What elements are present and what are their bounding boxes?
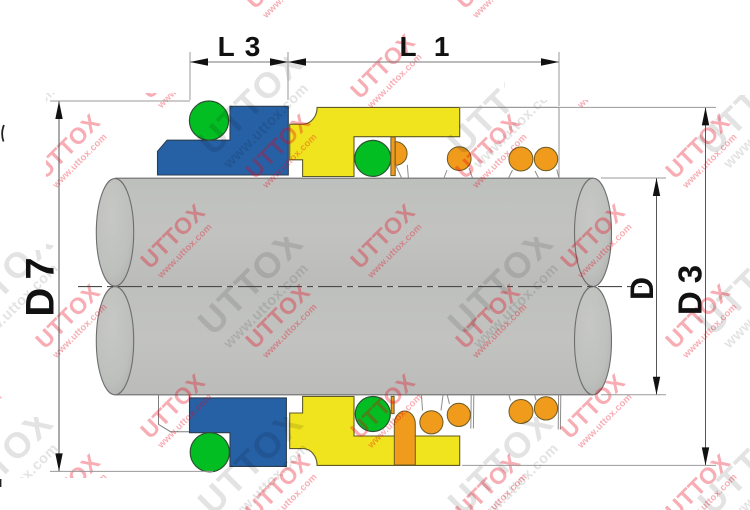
svg-text:D: D [624,277,660,300]
svg-text:L 1: L 1 [400,31,455,62]
svg-text:D7: D7 [19,249,63,316]
svg-text:L3: L3 [218,31,271,62]
svg-text:D3: D3 [672,257,709,315]
